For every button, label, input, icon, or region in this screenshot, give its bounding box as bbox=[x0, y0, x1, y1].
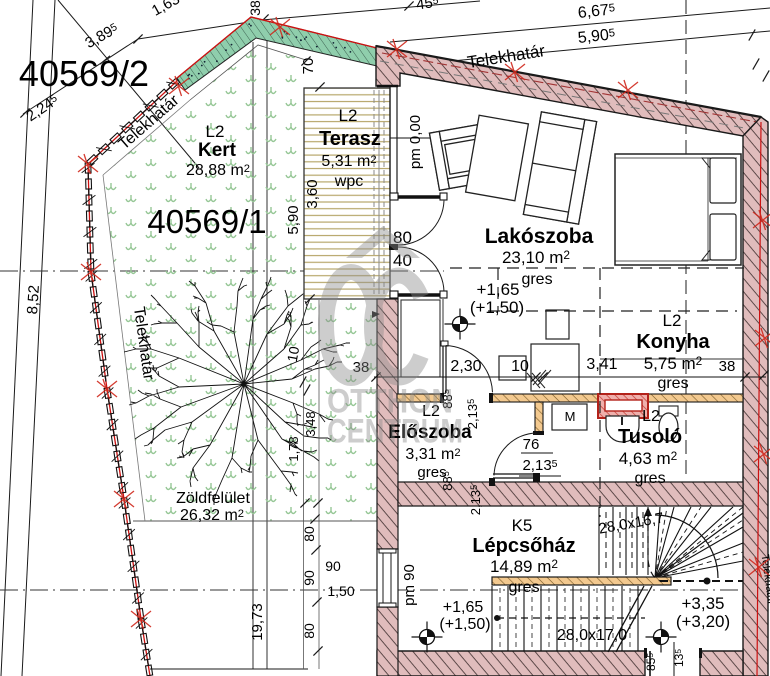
svg-text:gres: gres bbox=[657, 375, 688, 392]
svg-text:5,90: 5,90 bbox=[285, 205, 302, 234]
svg-text:8,52: 8,52 bbox=[24, 285, 43, 315]
svg-text:5,75 m2: 5,75 m2 bbox=[644, 354, 703, 373]
svg-text:1,50: 1,50 bbox=[327, 583, 354, 599]
svg-text:Terasz: Terasz bbox=[319, 128, 381, 150]
svg-text:Konyha: Konyha bbox=[636, 331, 710, 353]
svg-text:(+3,20): (+3,20) bbox=[676, 612, 730, 631]
svg-text:wpc: wpc bbox=[334, 173, 363, 190]
svg-text:1,78: 1,78 bbox=[286, 436, 301, 461]
svg-text:Tusoló: Tusoló bbox=[618, 426, 682, 448]
svg-text:CENTRUM: CENTRUM bbox=[327, 413, 463, 451]
svg-text:10: 10 bbox=[511, 358, 529, 375]
svg-text:76: 76 bbox=[523, 436, 540, 453]
svg-text:5,31 m2: 5,31 m2 bbox=[321, 153, 376, 170]
svg-text:80: 80 bbox=[301, 526, 317, 542]
svg-text:pm 90: pm 90 bbox=[401, 564, 418, 606]
svg-text:gres: gres bbox=[634, 470, 665, 487]
svg-text:4,63 m2: 4,63 m2 bbox=[619, 449, 678, 468]
svg-text:gres: gres bbox=[521, 271, 552, 288]
svg-text:L2: L2 bbox=[206, 122, 225, 141]
svg-text:gres: gres bbox=[508, 579, 539, 596]
svg-text:3,60: 3,60 bbox=[304, 179, 321, 208]
svg-text:90: 90 bbox=[301, 570, 317, 586]
svg-text:19,73: 19,73 bbox=[249, 603, 266, 641]
svg-text:K5: K5 bbox=[512, 516, 533, 535]
svg-text:38: 38 bbox=[719, 358, 736, 375]
svg-text:pm 0,00: pm 0,00 bbox=[407, 115, 424, 169]
svg-text:Zöldfelület: Zöldfelület bbox=[176, 490, 250, 507]
svg-text:80: 80 bbox=[301, 623, 317, 639]
svg-text:14,89 m2: 14,89 m2 bbox=[490, 557, 558, 576]
svg-text:3,41: 3,41 bbox=[586, 356, 617, 373]
svg-text:26,32 m2: 26,32 m2 bbox=[180, 507, 244, 524]
svg-text:23,10 m2: 23,10 m2 bbox=[502, 248, 570, 267]
svg-text:L2: L2 bbox=[663, 311, 682, 330]
svg-text:Lépcsőház: Lépcsőház bbox=[472, 535, 575, 557]
svg-text:2,30: 2,30 bbox=[450, 358, 481, 375]
svg-text:90: 90 bbox=[325, 558, 341, 574]
svg-text:40569/2: 40569/2 bbox=[19, 53, 149, 94]
svg-text:3,48: 3,48 bbox=[303, 411, 318, 436]
svg-text:+1,65: +1,65 bbox=[476, 280, 519, 299]
svg-text:38: 38 bbox=[247, 0, 263, 16]
svg-text:Lakószoba: Lakószoba bbox=[485, 225, 594, 248]
svg-text:M: M bbox=[565, 409, 576, 424]
svg-text:40569/1: 40569/1 bbox=[147, 203, 266, 240]
svg-text:+1,65: +1,65 bbox=[443, 599, 484, 616]
svg-text:+3,35: +3,35 bbox=[681, 594, 724, 613]
svg-text:28,0x17,0: 28,0x17,0 bbox=[557, 627, 627, 644]
svg-text:Kert: Kert bbox=[198, 140, 237, 161]
svg-text:10: 10 bbox=[284, 345, 302, 363]
svg-text:28,88 m2: 28,88 m2 bbox=[186, 162, 250, 179]
svg-text:(+1,50): (+1,50) bbox=[439, 616, 490, 633]
svg-text:70: 70 bbox=[300, 58, 317, 75]
svg-text:L2: L2 bbox=[642, 408, 660, 425]
svg-text:L2: L2 bbox=[339, 106, 358, 125]
svg-text:gres: gres bbox=[417, 464, 446, 481]
svg-text:(+1,50): (+1,50) bbox=[470, 298, 524, 317]
